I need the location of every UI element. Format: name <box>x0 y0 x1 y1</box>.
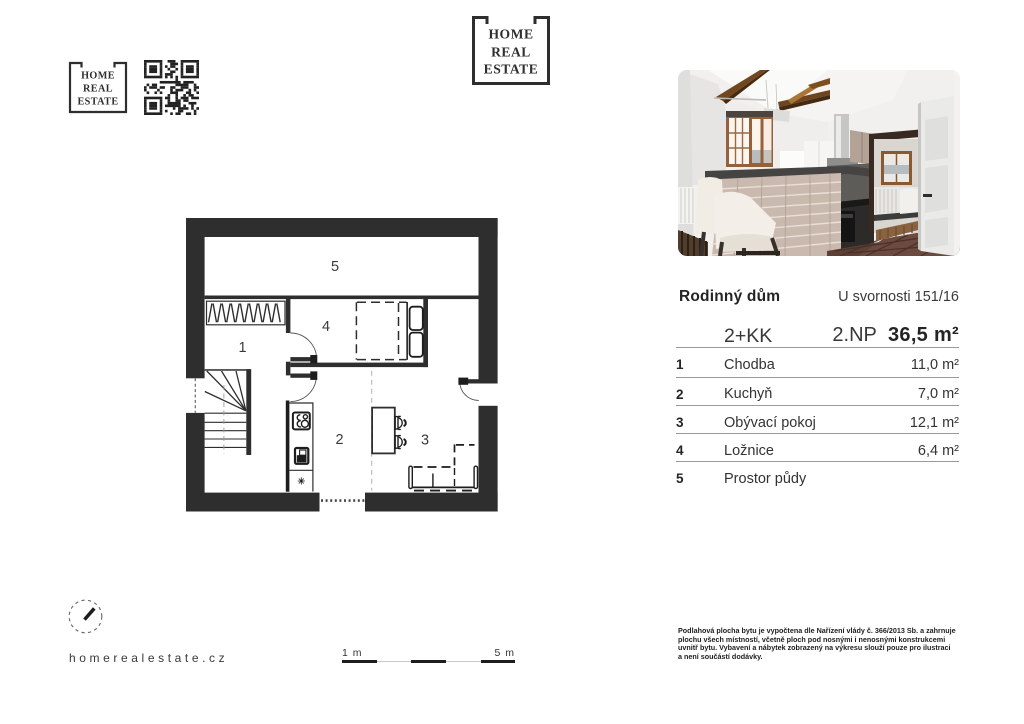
svg-text:3: 3 <box>421 433 429 449</box>
svg-text:1: 1 <box>238 340 246 356</box>
svg-text:ESTATE: ESTATE <box>77 97 118 108</box>
svg-text:REAL: REAL <box>491 45 531 60</box>
svg-text:HOME: HOME <box>81 71 115 82</box>
svg-text:HOME: HOME <box>488 27 533 42</box>
svg-text:ESTATE: ESTATE <box>484 62 539 77</box>
svg-text:REAL: REAL <box>83 84 113 95</box>
svg-text:4: 4 <box>322 319 330 335</box>
svg-text:2: 2 <box>335 432 343 448</box>
svg-text:5: 5 <box>331 259 339 275</box>
